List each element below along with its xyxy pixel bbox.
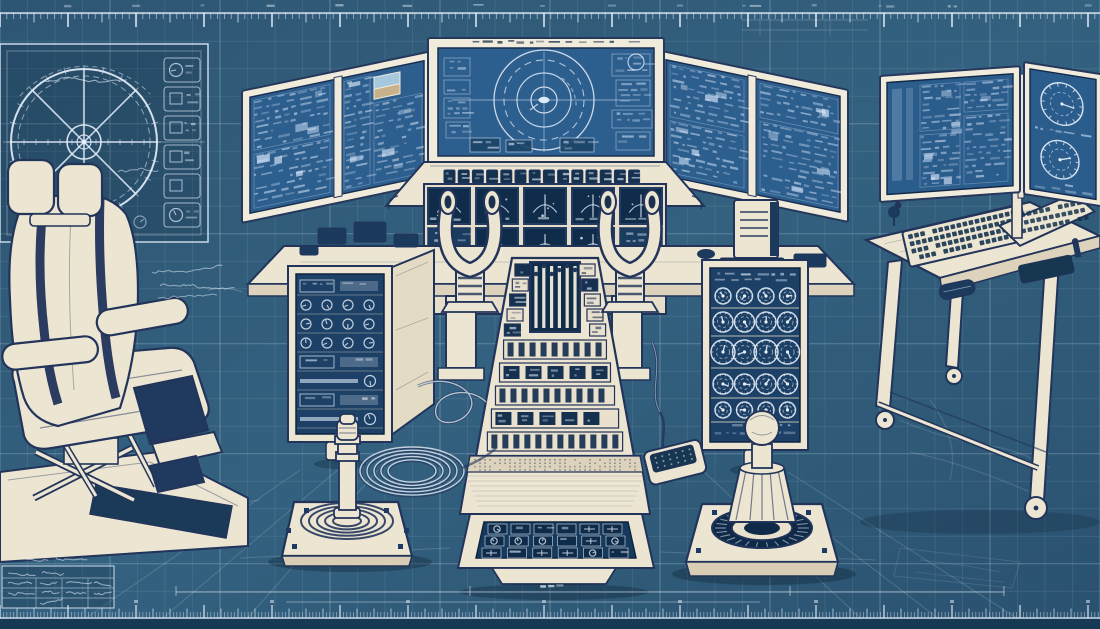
blueprint-illustration — [0, 0, 1100, 629]
chair-headrest — [8, 160, 54, 214]
ball-grip — [745, 411, 779, 445]
center-monitor — [428, 38, 664, 166]
right-monitor-right-panel — [1024, 62, 1100, 206]
right-monitor-left-panel — [880, 66, 1020, 202]
